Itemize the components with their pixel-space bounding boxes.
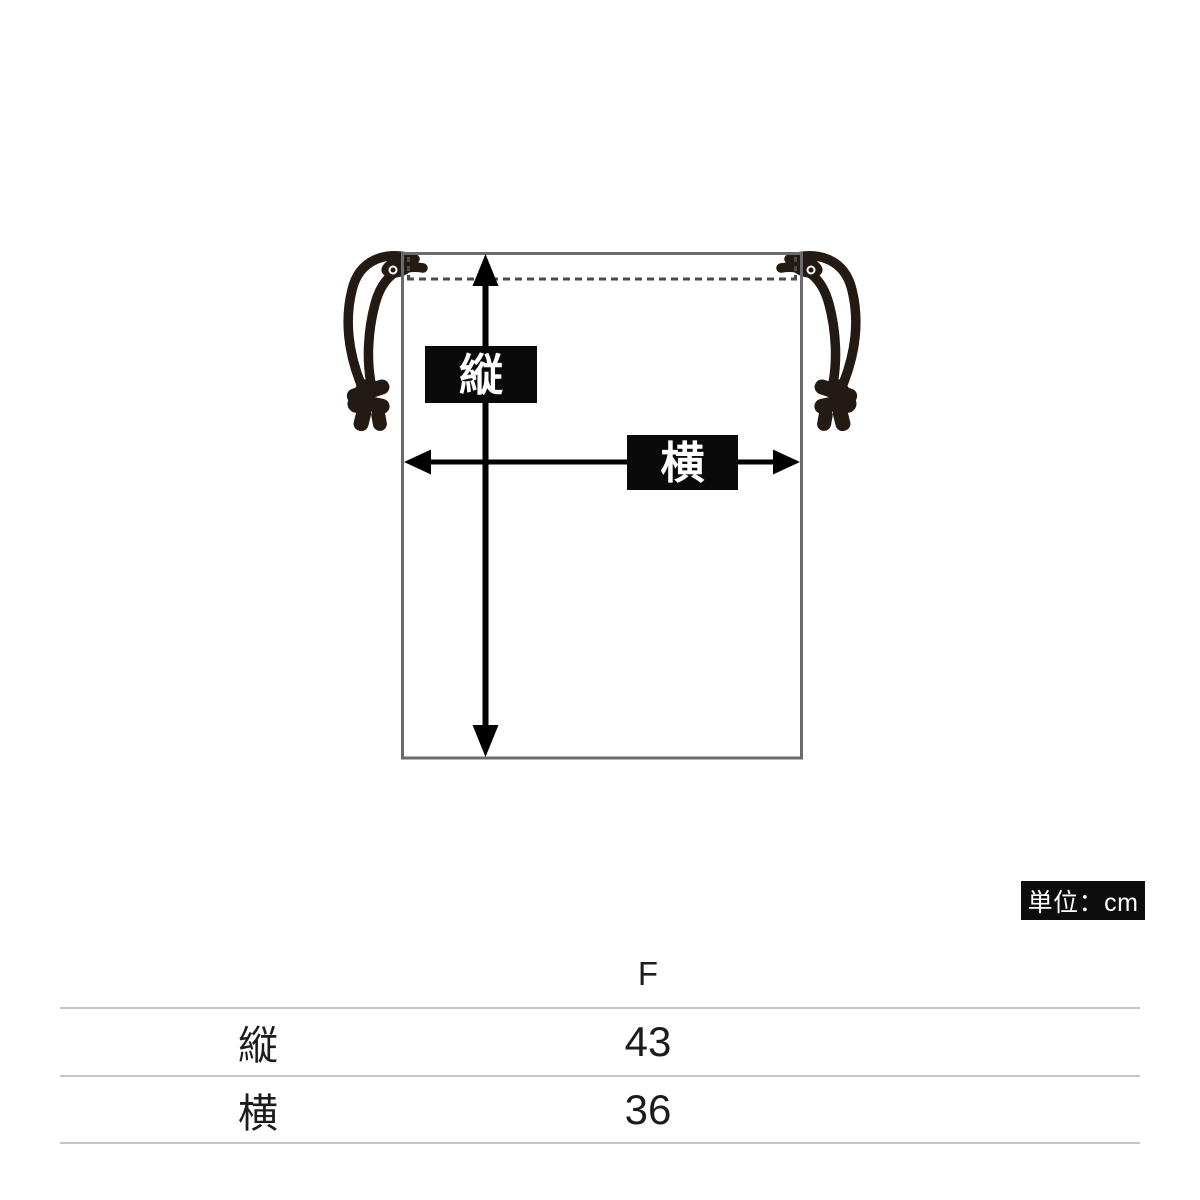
cord-knot-right bbox=[813, 376, 860, 433]
row-label: 縦 bbox=[60, 1013, 456, 1071]
cord-knot-left bbox=[344, 376, 391, 433]
unit-badge: 単位：cm bbox=[1021, 881, 1145, 920]
size-table: F 縦 43 横 36 bbox=[60, 941, 1140, 1144]
size-column-header: F bbox=[456, 955, 840, 993]
row-label: 横 bbox=[60, 1081, 456, 1139]
product-size-spec: 縦 横 単位：cm F 縦 43 横 36 bbox=[0, 0, 1200, 1200]
bag-body bbox=[403, 254, 802, 759]
vertical-dim-label: 縦 bbox=[459, 351, 503, 400]
table-row: 縦 43 bbox=[60, 1007, 1140, 1075]
row-value: 36 bbox=[456, 1086, 840, 1134]
table-row: 横 36 bbox=[60, 1075, 1140, 1144]
horizontal-dim-label: 横 bbox=[661, 439, 705, 488]
row-value: 43 bbox=[456, 1018, 840, 1066]
size-table-header-row: F bbox=[60, 941, 1140, 1007]
unit-badge-text: 単位：cm bbox=[1028, 883, 1139, 919]
vertical-label-box: 縦 bbox=[425, 346, 537, 403]
horizontal-label-box: 横 bbox=[627, 435, 738, 490]
